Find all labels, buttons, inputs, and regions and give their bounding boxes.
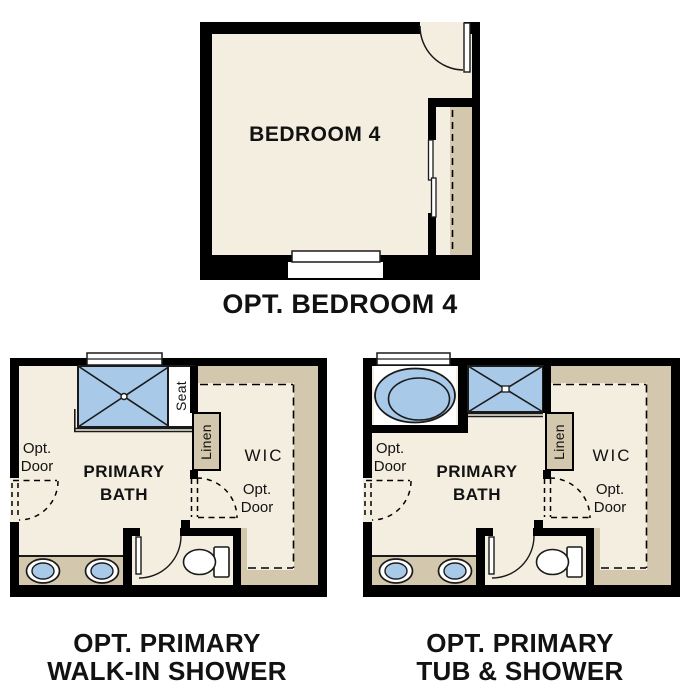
toilet-room — [476, 528, 594, 585]
bedroom-plan-title: OPT. BEDROOM 4 — [190, 290, 490, 318]
vanity-counter — [19, 556, 123, 585]
wic-label: WIC — [577, 446, 647, 466]
door-leaf — [464, 23, 470, 72]
primary-bath-label: PRIMARY BATH — [412, 461, 542, 506]
window — [87, 353, 162, 365]
primary-bath-label: PRIMARY BATH — [59, 461, 189, 506]
tub-and-shower-plan-title: OPT. PRIMARY TUB & SHOWER — [369, 629, 671, 685]
bathtub — [372, 358, 468, 433]
walk-in-shower-floorplan: Opt. Door PRIMARY BATH WIC Opt. Door Sea… — [10, 358, 327, 597]
toilet-bowl — [184, 550, 216, 575]
floorplan-sheet: { "colors": { "wall": "#000000", "floor"… — [0, 0, 687, 687]
opt-door-wic-label: Opt. Door — [226, 481, 288, 516]
bedroom-room-label: BEDROOM 4 — [215, 123, 415, 147]
walk-in-shower-plan-title: OPT. PRIMARY WALK-IN SHOWER — [16, 629, 318, 685]
opt-door-left-label: Opt. Door — [365, 440, 415, 475]
linen-label: Linen — [551, 412, 567, 472]
opt-door-wic-label: Opt. Door — [579, 481, 641, 516]
bedroom4-floorplan: BEDROOM 4 — [200, 22, 480, 280]
toilet-room — [123, 528, 241, 585]
vanity-counter — [372, 556, 476, 585]
wic-label: WIC — [229, 446, 299, 466]
seat-label: Seat — [173, 366, 189, 426]
bedroom4-drawing — [200, 16, 480, 280]
shower-drain — [502, 386, 509, 392]
opt-door-left-label: Opt. Door — [12, 440, 62, 475]
window — [377, 353, 450, 365]
sliding-door-panel — [432, 178, 437, 217]
shower-drain — [121, 394, 127, 400]
tub-and-shower-floorplan: Opt. Door PRIMARY BATH WIC Opt. Door Lin… — [363, 358, 680, 597]
shower — [468, 366, 543, 417]
window — [288, 251, 383, 278]
toilet-bowl — [537, 550, 569, 575]
door-leaf — [489, 537, 494, 574]
sliding-door-panel — [429, 140, 434, 180]
door-leaf — [136, 537, 141, 574]
linen-label: Linen — [198, 412, 214, 472]
